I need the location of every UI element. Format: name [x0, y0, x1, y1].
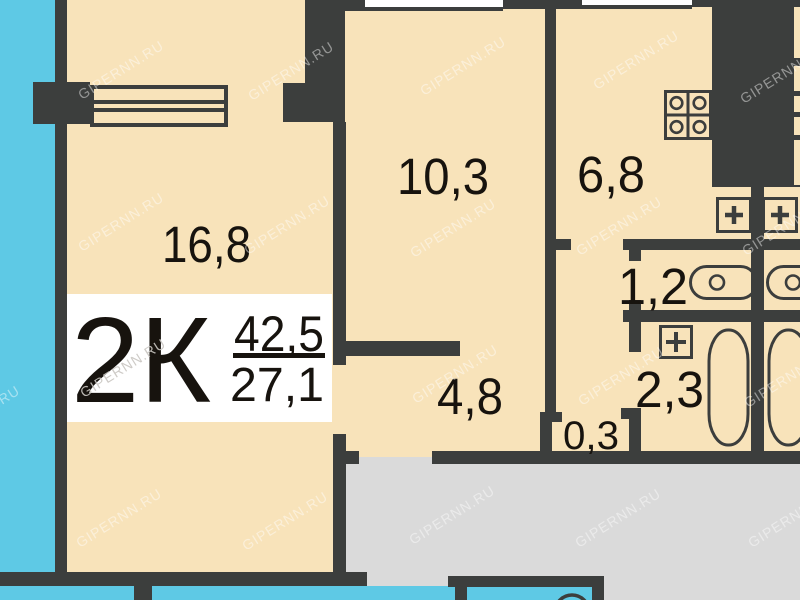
svg-text:1,2: 1,2 [618, 258, 688, 315]
svg-text:16,8: 16,8 [162, 216, 251, 273]
svg-text:0,3: 0,3 [563, 414, 619, 458]
svg-text:6,8: 6,8 [577, 146, 645, 203]
svg-text:27,1: 27,1 [230, 359, 324, 412]
svg-text:10,3: 10,3 [397, 148, 489, 205]
